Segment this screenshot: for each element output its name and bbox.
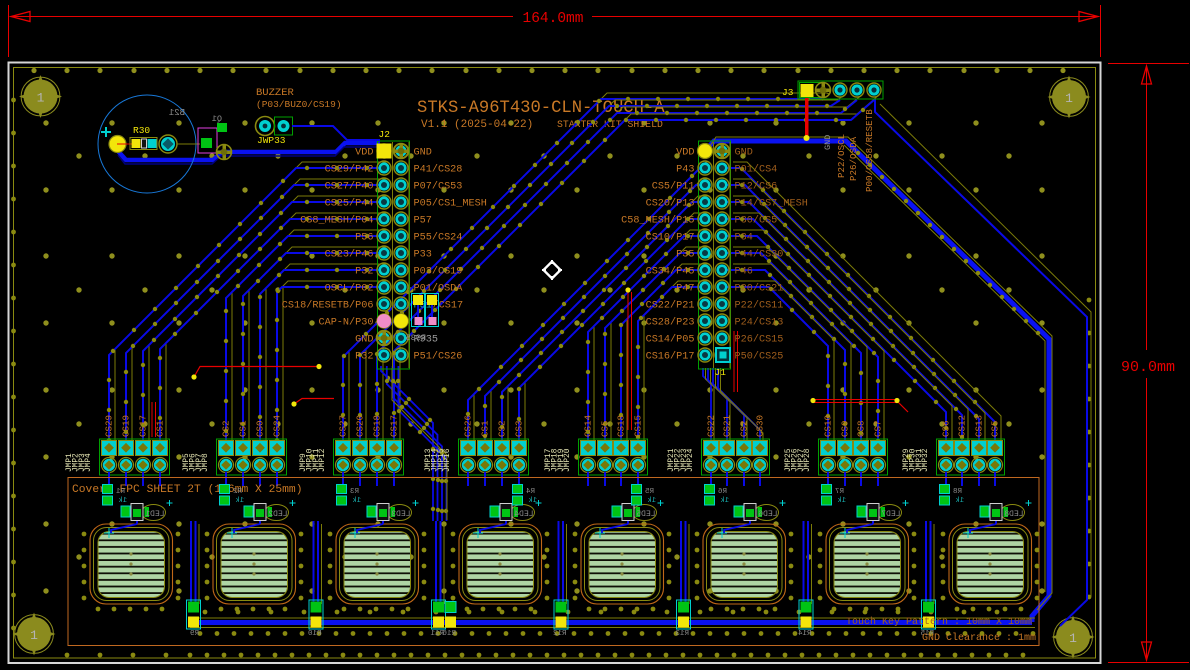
svg-text:CS30: CS30	[755, 415, 766, 437]
svg-text:CS22: CS22	[706, 415, 717, 437]
svg-text:P56: P56	[355, 233, 373, 244]
svg-text:1k: 1k	[721, 497, 729, 505]
svg-text:CS6: CS6	[941, 420, 952, 437]
svg-text:CS10: CS10	[823, 415, 834, 437]
svg-text:VDD: VDD	[355, 148, 373, 159]
svg-text:R13: R13	[675, 630, 689, 638]
svg-text:GND: GND	[355, 335, 373, 346]
svg-text:JMP24: JMP24	[687, 448, 695, 472]
svg-text:CS29/P42: CS29/P42	[325, 164, 374, 176]
svg-text:CS17: CS17	[138, 415, 149, 437]
svg-text:1k: 1k	[353, 497, 361, 505]
svg-text:CS18: CS18	[372, 415, 383, 437]
svg-text:J3: J3	[782, 87, 794, 98]
svg-text:CS7: CS7	[873, 420, 884, 437]
svg-text:P01/CS4: P01/CS4	[735, 164, 778, 176]
svg-text:P51/CS26: P51/CS26	[414, 351, 463, 363]
svg-text:CS21: CS21	[722, 414, 733, 437]
svg-text:CS12: CS12	[957, 415, 968, 437]
svg-text:GND Clearance : 1mm: GND Clearance : 1mm	[922, 632, 1036, 644]
svg-text:P50/CS25: P50/CS25	[735, 351, 784, 363]
svg-text:R2: R2	[233, 488, 242, 496]
svg-text:CS20: CS20	[355, 415, 366, 437]
svg-text:P32: P32	[355, 267, 373, 278]
svg-text:CS2: CS2	[739, 420, 750, 437]
svg-text:P34: P34	[735, 233, 753, 244]
svg-text:R4: R4	[525, 488, 535, 496]
svg-text:P33: P33	[414, 250, 432, 261]
svg-text:1k: 1k	[838, 497, 846, 505]
svg-text:CS5: CS5	[600, 420, 611, 437]
svg-text:P07/CS53: P07/CS53	[414, 181, 463, 193]
svg-text:R10: R10	[307, 630, 321, 638]
svg-text:LED5: LED5	[636, 510, 655, 519]
svg-text:R5: R5	[644, 488, 654, 496]
svg-text:JMP32: JMP32	[922, 448, 930, 472]
svg-text:JMP8: JMP8	[202, 453, 210, 472]
svg-text:CS24: CS24	[272, 414, 283, 437]
svg-text:CS13: CS13	[974, 415, 985, 437]
svg-text:CS22/P21: CS22/P21	[646, 300, 695, 312]
svg-text:JWP33: JWP33	[257, 135, 286, 146]
svg-text:P26/OSDA: P26/OSDA	[848, 136, 859, 181]
svg-text:C58_MESH/P15: C58_MESH/P15	[621, 215, 694, 227]
svg-text:R30: R30	[133, 125, 150, 136]
svg-text:CS1: CS1	[480, 420, 491, 437]
svg-text:1k: 1k	[236, 497, 244, 505]
svg-text:CS17: CS17	[389, 415, 400, 437]
svg-text:Q1: Q1	[212, 114, 222, 124]
svg-text:P00/CS58/RESETB: P00/CS58/RESETB	[864, 109, 875, 192]
svg-text:CS34/P45: CS34/P45	[646, 266, 695, 278]
svg-text:CS18: CS18	[616, 415, 627, 437]
svg-text:P26/CS15: P26/CS15	[735, 334, 784, 346]
svg-text:STKS-A96T430-CLN-TOUCH-A: STKS-A96T430-CLN-TOUCH-A	[417, 99, 665, 118]
svg-text:1k: 1k	[119, 497, 127, 505]
svg-text:90.0mm: 90.0mm	[1121, 359, 1175, 376]
svg-text:P01/OSDA: P01/OSDA	[414, 283, 464, 295]
svg-text:CS20/P13: CS20/P13	[646, 198, 695, 210]
svg-text:GND: GND	[823, 135, 833, 150]
svg-text:CS2: CS2	[497, 420, 508, 437]
svg-text:V1.1 (2025-04-22): V1.1 (2025-04-22)	[421, 119, 533, 131]
svg-text:Touch Key Pattern : 10mm X 10m: Touch Key Pattern : 10mm X 10mm	[846, 616, 1032, 628]
svg-text:GND: GND	[414, 148, 432, 159]
svg-text:CS10/P17: CS10/P17	[646, 232, 695, 244]
svg-text:R14: R14	[797, 630, 811, 638]
svg-text:1k: 1k	[529, 497, 537, 505]
svg-text:CS0: CS0	[255, 420, 266, 437]
svg-text:R3: R3	[349, 488, 359, 496]
svg-text:1: 1	[37, 91, 45, 106]
svg-text:CS8: CS8	[856, 420, 867, 437]
svg-text:OSCL/P02: OSCL/P02	[325, 283, 374, 295]
svg-text:P03/CS19: P03/CS19	[414, 266, 463, 278]
svg-text:P32: P32	[355, 352, 373, 363]
svg-text:LED3: LED3	[391, 510, 410, 519]
svg-text:R6: R6	[717, 488, 727, 496]
svg-text:P05/CS1_MESH: P05/CS1_MESH	[414, 198, 487, 210]
svg-text:LED1: LED1	[145, 510, 164, 519]
svg-text:1: 1	[1065, 91, 1073, 106]
svg-text:P57: P57	[414, 216, 432, 227]
svg-text:CS1: CS1	[155, 420, 166, 437]
svg-text:P41/CS28: P41/CS28	[414, 164, 463, 176]
svg-text:LED4: LED4	[514, 510, 533, 519]
svg-text:CAP-N/P30: CAP-N/P30	[318, 317, 373, 329]
svg-text:CS27/P40: CS27/P40	[325, 181, 374, 193]
svg-text:P24/CS13: P24/CS13	[735, 317, 784, 329]
svg-text:P22/OSCL: P22/OSCL	[836, 134, 847, 178]
svg-text:CS23/P46: CS23/P46	[325, 249, 374, 261]
svg-text:1: 1	[30, 628, 38, 643]
svg-text:R12: R12	[553, 630, 567, 638]
svg-text:R7: R7	[835, 488, 844, 496]
svg-text:CS5/P11: CS5/P11	[652, 181, 695, 193]
svg-text:P30/CS5: P30/CS5	[735, 215, 778, 227]
svg-text:1k: 1k	[648, 497, 656, 505]
svg-text:P46: P46	[735, 267, 753, 278]
svg-text:CS26: CS26	[463, 415, 474, 437]
svg-text:CS14: CS14	[583, 414, 594, 437]
svg-text:P43: P43	[676, 165, 694, 176]
svg-text:CS8_MESH/P04: CS8_MESH/P04	[300, 215, 373, 227]
svg-text:LED2: LED2	[268, 510, 287, 519]
svg-text:P22/CS11: P22/CS11	[735, 300, 784, 312]
svg-text:CS2: CS2	[221, 420, 232, 437]
svg-text:J2: J2	[379, 129, 391, 140]
svg-text:R8: R8	[953, 488, 962, 496]
svg-text:P14/CS7_MESH: P14/CS7_MESH	[735, 198, 808, 210]
svg-text:P20/CS21: P20/CS21	[735, 283, 784, 295]
svg-text:CS9: CS9	[840, 420, 851, 437]
svg-text:JMP12: JMP12	[319, 448, 327, 472]
svg-text:VDD: VDD	[676, 148, 694, 159]
svg-text:/CS17: /CS17	[433, 300, 464, 312]
svg-text:(P03/BUZ0/CS19): (P03/BUZ0/CS19)	[256, 99, 342, 110]
svg-text:1k: 1k	[956, 497, 964, 505]
svg-text:GND: GND	[735, 148, 753, 159]
svg-text:P55/CS24: P55/CS24	[414, 232, 463, 244]
svg-text:1: 1	[1069, 631, 1077, 646]
svg-text:CS28/P23: CS28/P23	[646, 317, 695, 329]
svg-text:R9: R9	[190, 630, 199, 638]
svg-text:R935: R935	[406, 333, 426, 343]
svg-text:R1: R1	[115, 488, 125, 496]
svg-text:CS14/P05: CS14/P05	[646, 334, 695, 346]
svg-text:CS15: CS15	[633, 415, 644, 437]
svg-text:LED8: LED8	[1004, 510, 1023, 519]
svg-text:BUZZER: BUZZER	[256, 87, 295, 99]
svg-text:CS18/RESETB/P06: CS18/RESETB/P06	[282, 300, 374, 312]
svg-text:LED7: LED7	[881, 510, 900, 519]
svg-text:P44/CS30: P44/CS30	[735, 249, 784, 261]
svg-text:JMP16: JMP16	[444, 448, 452, 472]
svg-text:LED6: LED6	[758, 510, 777, 519]
svg-text:CS27: CS27	[338, 415, 349, 437]
svg-text:R11: R11	[430, 630, 444, 638]
svg-text:P12/CS6: P12/CS6	[735, 181, 778, 193]
svg-text:CS5: CS5	[990, 420, 1001, 437]
svg-text:P47: P47	[676, 284, 694, 295]
svg-text:CS16/P17: CS16/P17	[646, 351, 695, 363]
svg-text:164.0mm: 164.0mm	[523, 11, 584, 27]
svg-text:B21: B21	[169, 108, 185, 118]
svg-text:JMP28: JMP28	[804, 448, 812, 472]
svg-text:CS19: CS19	[121, 415, 132, 437]
svg-text:JMP4: JMP4	[85, 453, 93, 472]
svg-text:CS3: CS3	[514, 420, 525, 437]
svg-text:P35: P35	[676, 250, 694, 261]
svg-text:CS1: CS1	[238, 420, 249, 437]
svg-text:J1: J1	[715, 367, 727, 378]
svg-text:JMP20: JMP20	[564, 448, 572, 472]
svg-text:CS25/P44: CS25/P44	[325, 198, 374, 210]
svg-text:CS29: CS29	[104, 415, 115, 437]
